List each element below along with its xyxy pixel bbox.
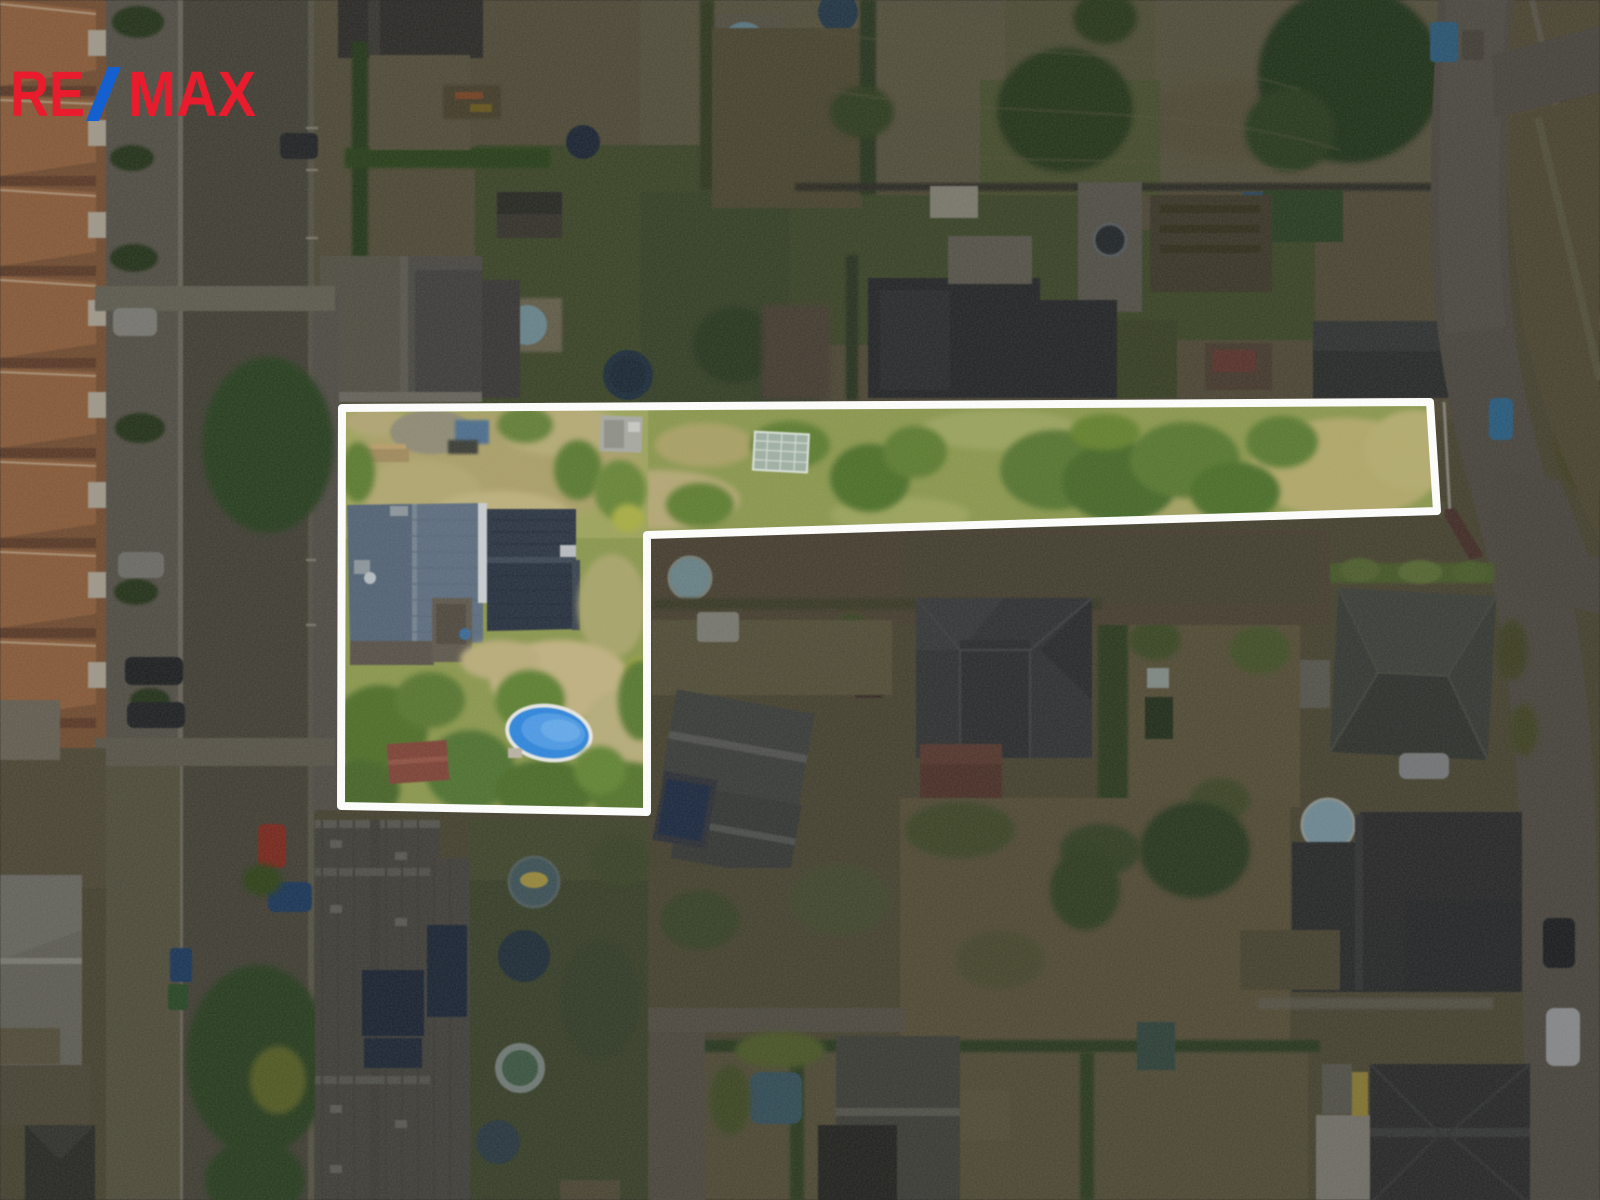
svg-text:MAX: MAX: [128, 58, 256, 130]
svg-text:RE: RE: [10, 58, 85, 130]
